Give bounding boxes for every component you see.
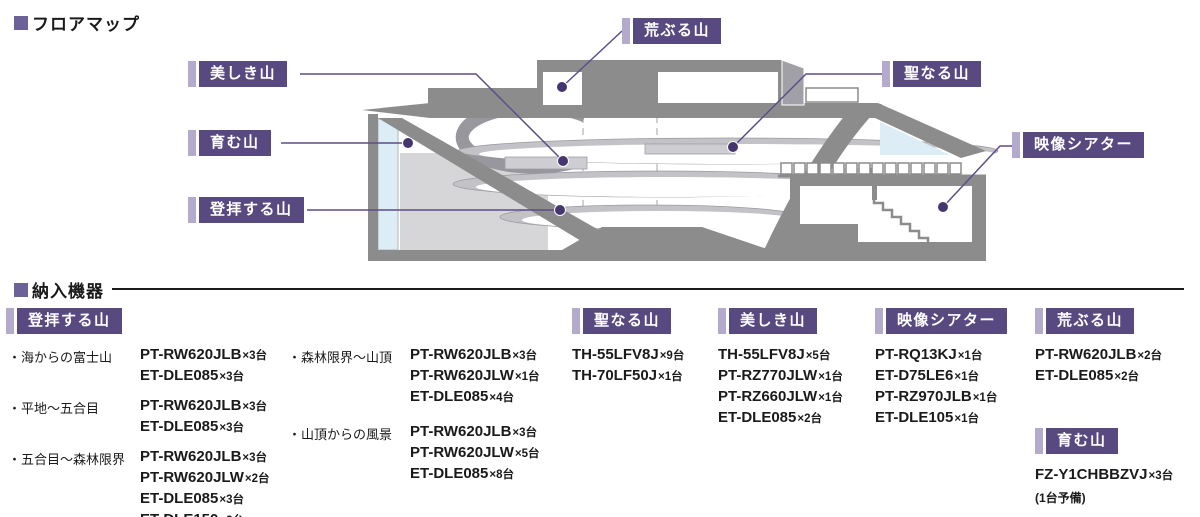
equipment-column-utsukushiki: 美しき山 TH-55LFV8J×5台 PT-RZ770JLW×1台 PT-RZ6…	[718, 308, 843, 429]
model-number: ET-DLE085	[410, 388, 488, 405]
quantity: ×3台	[242, 401, 267, 413]
section-marker-icon	[14, 283, 28, 297]
scene-items: PT-RW620JLB×3台 PT-RW620JLW×5台 ET-DLE085×…	[410, 422, 540, 485]
equipment-item: PT-RW620JLB×3台	[410, 422, 540, 443]
map-label-text: 聖なる山	[893, 61, 981, 87]
equipment-item: ET-DLE085×3台	[140, 417, 267, 438]
label-accent-bar	[1012, 132, 1020, 158]
rooftop-box	[806, 88, 858, 102]
quantity: ×3台	[242, 350, 267, 362]
equipment-column-hagukumu: 育む山 FZ-Y1CHBBZVJ×3台 (1台予備)	[1035, 428, 1173, 506]
dot-utsukushiki	[558, 156, 569, 167]
equipment-column-tohai: 登拝する山 ・海からの富士山 PT-RW620JLB×3台 ET-DLE085×…	[8, 308, 568, 517]
penthouse-step	[428, 88, 538, 105]
model-number: ET-DLE085	[410, 465, 488, 482]
equipment-header-araburu: 荒ぶる山	[1035, 308, 1162, 334]
quantity: ×1台	[515, 371, 540, 383]
quantity: ×1台	[954, 413, 979, 425]
left-wall	[368, 114, 378, 261]
building-structure	[362, 60, 998, 261]
equipment-item: PT-RW620JLB×2台	[1035, 345, 1162, 366]
label-accent-bar	[875, 308, 883, 334]
floor-map: 荒ぶる山 美しき山 聖なる山 育む山 登拝する山 映像シアター	[0, 0, 1200, 270]
dot-tohai	[555, 205, 566, 216]
quantity: ×2台	[245, 473, 270, 485]
equipment-item: PT-RQ13KJ×1台	[875, 345, 1007, 366]
equipment-column-hijiri: 聖なる山 TH-55LFV8J×9台 TH-70LF50J×1台	[572, 308, 684, 387]
label-accent-bar	[6, 308, 14, 334]
equipment-item: FZ-Y1CHBBZVJ×3台	[1035, 465, 1173, 486]
quantity: ×3台	[512, 427, 537, 439]
label-accent-bar	[188, 197, 196, 223]
scene-items: PT-RW620JLB×3台 PT-RW620JLW×1台 ET-DLE085×…	[410, 345, 540, 408]
model-number: PT-RW620JLW	[140, 469, 244, 486]
model-number: FZ-Y1CHBBZVJ	[1035, 466, 1148, 483]
label-accent-bar	[1035, 428, 1043, 454]
map-label-hagukumu: 育む山	[188, 130, 271, 156]
map-label-tohai: 登拝する山	[188, 197, 304, 223]
equipment-item: PT-RW620JLW×2台	[140, 468, 270, 489]
equipment-item: ET-DLE085×2台	[1035, 366, 1162, 387]
equipment-item: PT-RZ660JLW×1台	[718, 387, 843, 408]
label-accent-bar	[572, 308, 580, 334]
quantity: ×8台	[489, 469, 514, 481]
scene-label: ・山頂からの風景	[288, 422, 410, 485]
model-number: TH-70LF50J	[572, 367, 657, 384]
quantity: ×1台	[818, 392, 843, 404]
equipment-header-text: 映像シアター	[886, 308, 1007, 334]
equipment-header-theater: 映像シアター	[875, 308, 1007, 334]
model-number: TH-55LFV8J	[572, 346, 659, 363]
dot-hijiri	[728, 142, 739, 153]
equipment-item: ET-DLE105×1台	[875, 408, 1007, 429]
equipment-item: PT-RZ970JLB×1台	[875, 387, 1007, 408]
model-number: PT-RW620JLB	[1035, 346, 1136, 363]
model-number: PT-RW620JLB	[140, 397, 241, 414]
ramp-slab	[505, 157, 587, 169]
quantity: ×3台	[219, 494, 244, 506]
equipment-header-utsukushiki: 美しき山	[718, 308, 843, 334]
scene-items: PT-RW620JLB×3台 PT-RW620JLW×2台 ET-DLE085×…	[140, 447, 270, 517]
label-accent-bar	[718, 308, 726, 334]
quantity: ×1台	[958, 350, 983, 362]
equipment-title-text: 納入機器	[32, 277, 104, 302]
quantity: ×3台	[1149, 470, 1174, 482]
quantity: ×5台	[515, 448, 540, 460]
glass-wall-left	[378, 119, 398, 250]
quantity: ×3台	[219, 422, 244, 434]
map-label-hijiri: 聖なる山	[882, 61, 981, 87]
model-number: ET-DLE085	[718, 409, 796, 426]
penthouse-window	[658, 72, 778, 103]
annex-floor-step	[800, 224, 858, 242]
equipment-header-text: 美しき山	[729, 308, 817, 334]
equipment-header-hijiri: 聖なる山	[572, 308, 684, 334]
equipment-item: TH-55LFV8J×5台	[718, 345, 843, 366]
model-number: PT-RZ770JLW	[718, 367, 817, 384]
map-label-araburu: 荒ぶる山	[622, 18, 721, 44]
quantity: ×3台	[512, 350, 537, 362]
scene-items: PT-RW620JLB×3台 ET-DLE085×3台	[140, 345, 267, 387]
model-number: ET-DLE150	[140, 511, 218, 517]
ramp-slab	[645, 144, 735, 154]
label-accent-bar	[882, 61, 890, 87]
scene-label: ・海からの富士山	[8, 345, 140, 387]
map-label-text: 育む山	[199, 130, 271, 156]
equipment-item: PT-RW620JLB×3台	[140, 447, 270, 468]
equipment-item: ET-DLE085×3台	[140, 366, 267, 387]
quantity: ×1台	[954, 371, 979, 383]
model-number: PT-RW620JLB	[410, 346, 511, 363]
map-label-text: 荒ぶる山	[633, 18, 721, 44]
label-accent-bar	[622, 18, 630, 44]
model-number: ET-DLE085	[1035, 367, 1113, 384]
equipment-item: ET-DLE085×8台	[410, 464, 540, 485]
equipment-item: PT-RW620JLW×5台	[410, 443, 540, 464]
quantity: ×4台	[489, 392, 514, 404]
model-number: PT-RW620JLW	[410, 367, 514, 384]
quantity: ×2台	[1137, 350, 1162, 362]
quantity: ×9台	[660, 350, 685, 362]
equipment-item: PT-RW620JLB×3台	[140, 396, 267, 417]
model-number: TH-55LFV8J	[718, 346, 805, 363]
equipment-header-tohai: 登拝する山	[6, 308, 568, 334]
quantity: ×1台	[658, 371, 683, 383]
quantity: ×1台	[973, 392, 998, 404]
dot-araburu	[557, 82, 568, 93]
scene-label: ・五合目〜森林限界	[8, 447, 140, 517]
equipment-item: ET-D75LE6×1台	[875, 366, 1007, 387]
equipment-header-hagukumu: 育む山	[1035, 428, 1173, 454]
dot-theater	[938, 202, 949, 213]
equipment-header-text: 聖なる山	[583, 308, 671, 334]
quantity: ×5台	[806, 350, 831, 362]
equipment-header-text: 育む山	[1046, 428, 1118, 454]
floor-slab	[368, 250, 986, 261]
equipment-list: 登拝する山 ・海からの富士山 PT-RW620JLB×3台 ET-DLE085×…	[0, 300, 1200, 517]
equipment-item: ET-DLE085×2台	[718, 408, 843, 429]
map-label-text: 登拝する山	[199, 197, 304, 223]
equipment-item: TH-70LF50J×1台	[572, 366, 684, 387]
tohai-subcolumn-b: ・森林限界〜山頂 PT-RW620JLB×3台 PT-RW620JLW×1台 E…	[288, 345, 540, 494]
model-number: PT-RQ13KJ	[875, 346, 957, 363]
model-number: ET-D75LE6	[875, 367, 953, 384]
quantity: ×2台	[1114, 371, 1139, 383]
quantity: ×1台	[818, 371, 843, 383]
equipment-item: ET-DLE085×3台	[140, 489, 270, 510]
penthouse-side-face	[782, 60, 804, 105]
model-number: ET-DLE085	[140, 490, 218, 507]
model-number: PT-RW620JLW	[410, 444, 514, 461]
model-number: ET-DLE105	[875, 409, 953, 426]
scene-label: ・森林限界〜山頂	[288, 345, 410, 408]
equipment-item: PT-RW620JLB×3台	[410, 345, 540, 366]
scene-label: ・平地〜五合目	[8, 396, 140, 438]
equipment-group: ・森林限界〜山頂 PT-RW620JLB×3台 PT-RW620JLW×1台 E…	[288, 345, 540, 408]
model-number: PT-RZ970JLB	[875, 388, 972, 405]
equipment-item: PT-RW620JLW×1台	[410, 366, 540, 387]
model-number: PT-RW620JLB	[140, 448, 241, 465]
equipment-column-theater: 映像シアター PT-RQ13KJ×1台 ET-D75LE6×1台 PT-RZ97…	[875, 308, 1007, 429]
equipment-section-title: 納入機器	[14, 277, 104, 302]
equipment-item: TH-55LFV8J×9台	[572, 345, 684, 366]
equipment-column-araburu: 荒ぶる山 PT-RW620JLB×2台 ET-DLE085×2台	[1035, 308, 1162, 387]
map-label-theater: 映像シアター	[1012, 132, 1144, 158]
map-label-utsukushiki: 美しき山	[188, 61, 287, 87]
model-number: ET-DLE085	[140, 418, 218, 435]
equipment-item: ET-DLE150×2台	[140, 510, 270, 517]
section-rule	[112, 288, 1184, 290]
equipment-group: ・山頂からの風景 PT-RW620JLB×3台 PT-RW620JLW×5台 E…	[288, 422, 540, 485]
equipment-header-text: 荒ぶる山	[1046, 308, 1134, 334]
scene-items: PT-RW620JLB×3台 ET-DLE085×3台	[140, 396, 267, 438]
page: フロアマップ	[0, 0, 1200, 517]
label-accent-bar	[188, 61, 196, 87]
map-label-text: 映像シアター	[1023, 132, 1144, 158]
model-number: PT-RW620JLB	[410, 423, 511, 440]
model-number: PT-RZ660JLW	[718, 388, 817, 405]
equipment-item: PT-RW620JLB×3台	[140, 345, 267, 366]
quantity: ×2台	[797, 413, 822, 425]
model-number: PT-RW620JLB	[140, 346, 241, 363]
spare-note: (1台予備)	[1035, 489, 1173, 506]
equipment-item: PT-RZ770JLW×1台	[718, 366, 843, 387]
equipment-item: ET-DLE085×4台	[410, 387, 540, 408]
quantity: ×3台	[242, 452, 267, 464]
equipment-header-text: 登拝する山	[17, 308, 122, 334]
quantity: ×3台	[219, 371, 244, 383]
label-accent-bar	[1035, 308, 1043, 334]
label-accent-bar	[188, 130, 196, 156]
dot-hagukumu	[403, 138, 414, 149]
model-number: ET-DLE085	[140, 367, 218, 384]
map-label-text: 美しき山	[199, 61, 287, 87]
